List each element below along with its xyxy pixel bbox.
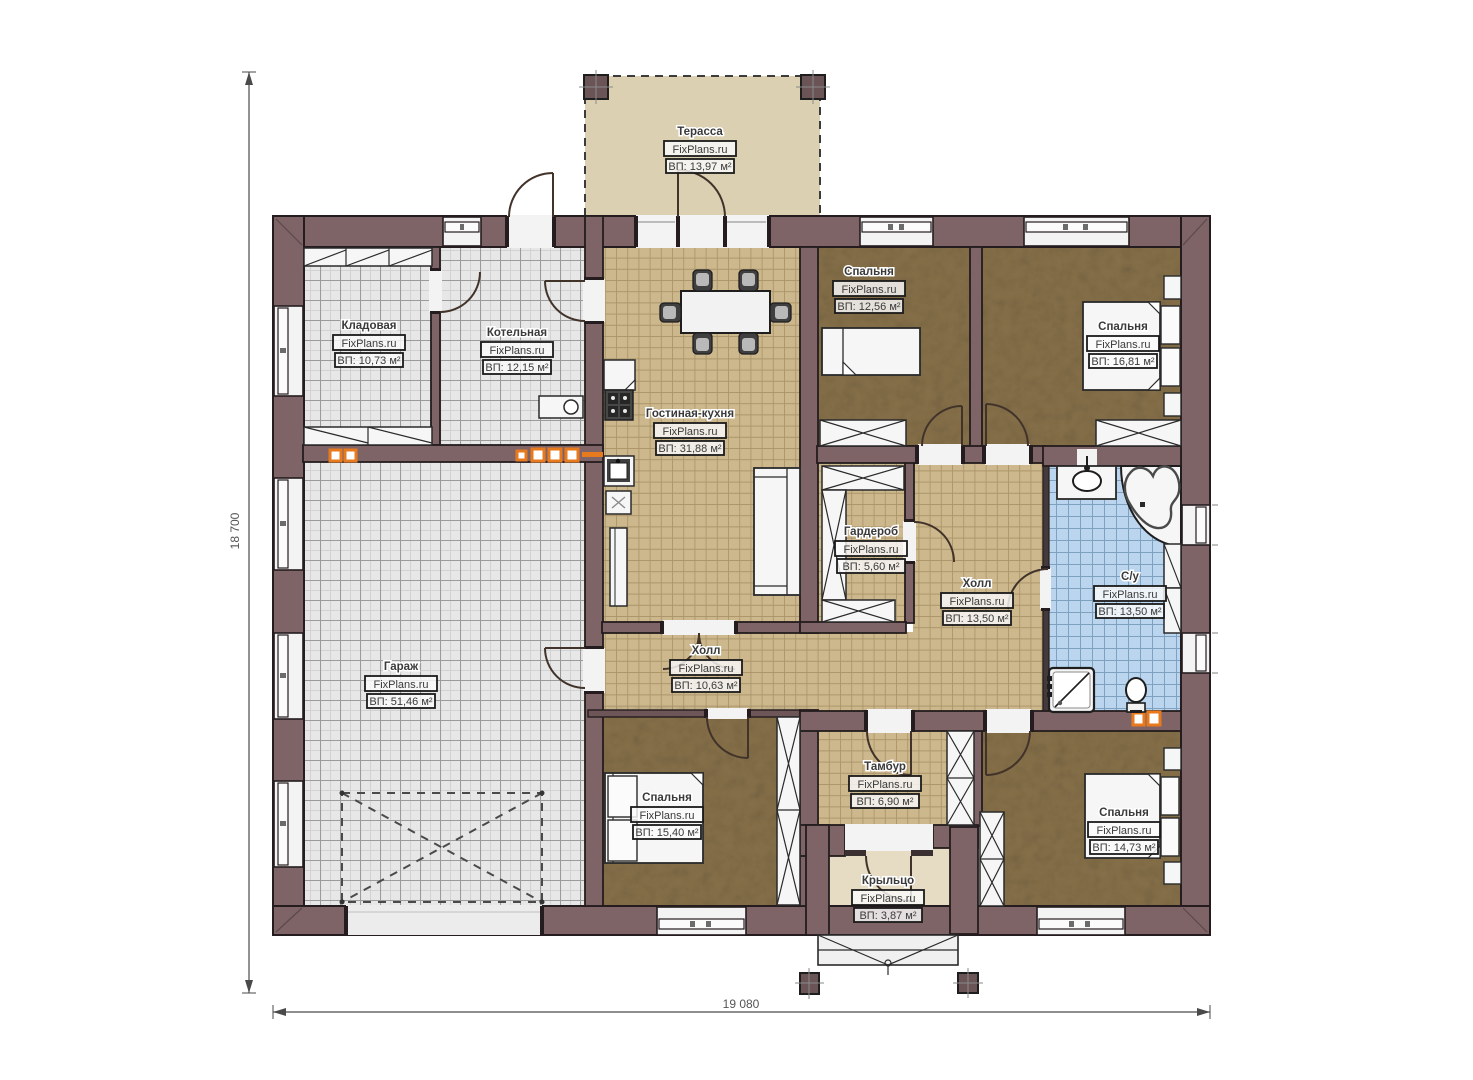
svg-text:ВП: 16,81 м²: ВП: 16,81 м² [1091, 356, 1155, 368]
svg-text:Тамбур: Тамбур [864, 761, 906, 773]
svg-text:С/у: С/у [1121, 571, 1140, 583]
svg-text:ВП: 10,73 м²: ВП: 10,73 м² [337, 355, 401, 367]
svg-text:ВП: 5,60 м²: ВП: 5,60 м² [842, 561, 899, 573]
svg-text:Спальня: Спальня [642, 792, 692, 804]
svg-text:ВП: 31,88 м²: ВП: 31,88 м² [658, 443, 722, 455]
svg-text:FixPlans.ru: FixPlans.ru [1102, 589, 1157, 601]
svg-text:ВП: 15,40 м²: ВП: 15,40 м² [635, 827, 699, 839]
svg-text:18 700: 18 700 [228, 512, 242, 549]
svg-text:Терасса: Терасса [677, 126, 723, 138]
svg-text:ВП: 12,15 м²: ВП: 12,15 м² [485, 362, 549, 374]
svg-text:Холл: Холл [692, 645, 721, 657]
svg-text:ВП: 13,50 м²: ВП: 13,50 м² [1098, 606, 1162, 618]
svg-text:Котельная: Котельная [487, 327, 547, 339]
svg-text:ВП: 6,90 м²: ВП: 6,90 м² [856, 796, 913, 808]
svg-text:Спальня: Спальня [1098, 321, 1148, 333]
svg-text:19 080: 19 080 [723, 997, 760, 1011]
svg-text:FixPlans.ru: FixPlans.ru [1096, 825, 1151, 837]
svg-text:FixPlans.ru: FixPlans.ru [841, 284, 896, 296]
svg-text:FixPlans.ru: FixPlans.ru [341, 338, 396, 350]
svg-text:FixPlans.ru: FixPlans.ru [672, 144, 727, 156]
svg-text:FixPlans.ru: FixPlans.ru [1095, 339, 1150, 351]
svg-text:ВП: 12,56 м²: ВП: 12,56 м² [837, 301, 901, 313]
svg-text:Гардероб: Гардероб [844, 526, 898, 538]
svg-text:FixPlans.ru: FixPlans.ru [678, 663, 733, 675]
svg-text:Крыльцо: Крыльцо [862, 875, 914, 887]
svg-text:Гостиная-кухня: Гостиная-кухня [646, 408, 734, 420]
svg-text:ВП: 13,97 м²: ВП: 13,97 м² [668, 161, 732, 173]
svg-text:ВП: 14,73 м²: ВП: 14,73 м² [1092, 842, 1156, 854]
svg-text:ВП: 51,46 м²: ВП: 51,46 м² [369, 696, 433, 708]
svg-text:FixPlans.ru: FixPlans.ru [489, 345, 544, 357]
svg-text:Спальня: Спальня [1099, 807, 1149, 819]
svg-text:Кладовая: Кладовая [341, 320, 396, 332]
svg-text:ВП: 10,63 м²: ВП: 10,63 м² [674, 680, 738, 692]
svg-text:Гараж: Гараж [384, 661, 419, 673]
svg-text:FixPlans.ru: FixPlans.ru [949, 596, 1004, 608]
svg-text:Холл: Холл [963, 578, 992, 590]
svg-text:FixPlans.ru: FixPlans.ru [373, 679, 428, 691]
svg-text:Спальня: Спальня [844, 266, 894, 278]
svg-text:FixPlans.ru: FixPlans.ru [843, 544, 898, 556]
svg-text:FixPlans.ru: FixPlans.ru [662, 426, 717, 438]
svg-text:FixPlans.ru: FixPlans.ru [857, 779, 912, 791]
svg-text:FixPlans.ru: FixPlans.ru [860, 893, 915, 905]
svg-text:ВП: 13,50 м²: ВП: 13,50 м² [945, 613, 1009, 625]
svg-text:ВП: 3,87 м²: ВП: 3,87 м² [859, 910, 916, 922]
svg-text:FixPlans.ru: FixPlans.ru [639, 810, 694, 822]
